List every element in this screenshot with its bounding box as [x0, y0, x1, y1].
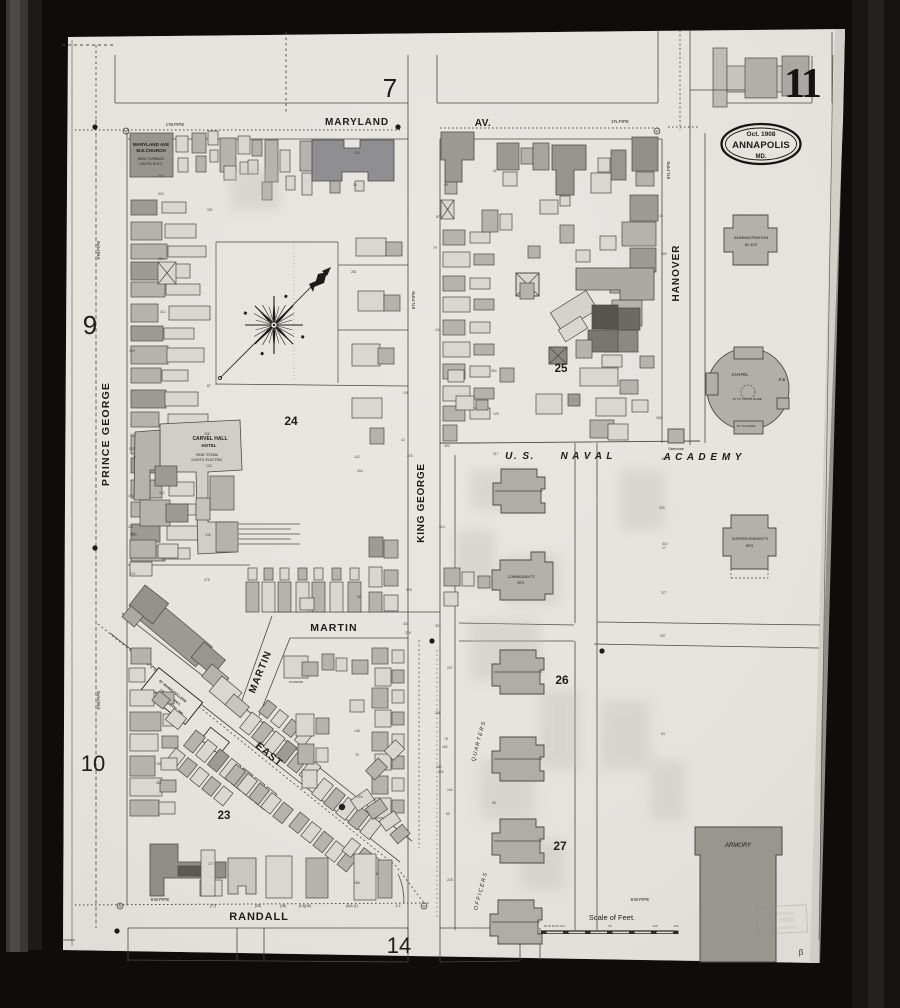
svg-text:FOUNTAIN: FOUNTAIN	[289, 680, 303, 684]
svg-text:27: 27	[553, 839, 567, 853]
svg-text:177: 177	[208, 862, 214, 866]
svg-text:87: 87	[436, 215, 440, 219]
svg-text:7: 7	[383, 73, 397, 103]
svg-text:314: 314	[439, 525, 445, 529]
svg-text:228: 228	[447, 878, 453, 882]
svg-text:76: 76	[355, 753, 359, 757]
svg-text:96: 96	[357, 595, 361, 599]
svg-text:(14)(16): (14)(16)	[299, 904, 312, 908]
svg-text:331: 331	[128, 525, 134, 529]
svg-text:171: 171	[130, 572, 136, 576]
svg-text:311: 311	[156, 781, 162, 785]
svg-text:337: 337	[660, 634, 666, 638]
svg-text:(18): (18)	[280, 904, 286, 908]
svg-text:50: 50	[608, 924, 612, 928]
svg-text:14: 14	[387, 933, 411, 958]
svg-text:76' TO TOP OF DOME: 76' TO TOP OF DOME	[732, 397, 761, 401]
svg-text:Gatehouse: Gatehouse	[668, 447, 684, 451]
svg-text:SUPERINTENDENT'S: SUPERINTENDENT'S	[732, 537, 769, 541]
svg-text:164: 164	[447, 788, 453, 792]
svg-text:354: 354	[491, 369, 497, 373]
svg-text:324: 324	[158, 192, 164, 196]
svg-text:353: 353	[130, 433, 136, 437]
svg-text:159: 159	[129, 349, 135, 353]
svg-text:182: 182	[442, 745, 448, 749]
svg-text:26: 26	[555, 673, 569, 687]
svg-text:207: 207	[447, 666, 453, 670]
svg-text:59: 59	[446, 812, 450, 816]
svg-text:148: 148	[354, 729, 360, 733]
svg-text:150: 150	[673, 924, 678, 928]
svg-text:1′N.PIPE: 1′N.PIPE	[611, 119, 629, 124]
svg-text:PRINCE GEORGE: PRINCE GEORGE	[100, 382, 112, 486]
svg-text:4 2: 4 2	[396, 904, 401, 908]
svg-text:MARYLAND AVE: MARYLAND AVE	[133, 142, 169, 147]
svg-text:275: 275	[204, 578, 210, 582]
svg-text:RANDALL: RANDALL	[229, 911, 288, 923]
svg-text:MARYLAND: MARYLAND	[325, 117, 389, 128]
svg-text:KING GEORGE: KING GEORGE	[416, 463, 427, 542]
svg-text:10: 10	[81, 751, 105, 776]
svg-text:11: 11	[784, 61, 820, 107]
svg-text:(8)A (1): (8)A (1)	[346, 904, 358, 908]
svg-text:25: 25	[132, 455, 136, 459]
svg-text:50 40 30 20 10 0: 50 40 30 20 10 0	[544, 924, 565, 928]
svg-text:LIGHTS: ELEC.: LIGHTS: ELEC.	[139, 162, 163, 166]
svg-text:MARTIN: MARTIN	[310, 622, 357, 634]
svg-text:6′W.PIPE: 6′W.PIPE	[151, 897, 170, 902]
svg-text:245: 245	[205, 533, 211, 537]
svg-text:6′W.PIPE: 6′W.PIPE	[631, 897, 650, 902]
svg-text:(77): (77)	[210, 904, 216, 908]
svg-text:6′W.PIPE: 6′W.PIPE	[96, 241, 101, 260]
svg-text:BL'D'G: BL'D'G	[745, 242, 757, 247]
svg-text:LIGHTS: ELECTRIC: LIGHTS: ELECTRIC	[192, 458, 223, 462]
svg-text:42: 42	[401, 438, 405, 442]
svg-text:129: 129	[493, 412, 499, 416]
svg-text:6′W.PIPE: 6′W.PIPE	[96, 691, 101, 710]
svg-text:ANNAPOLIS: ANNAPOLIS	[732, 140, 790, 151]
svg-text:6′N.PIPE: 6′N.PIPE	[666, 161, 671, 179]
svg-text:377: 377	[661, 591, 667, 595]
svg-text:HEAT: STEAM: HEAT: STEAM	[196, 453, 218, 457]
svg-text:286: 286	[354, 881, 360, 885]
svg-text:1′W.PIPE: 1′W.PIPE	[166, 122, 185, 127]
svg-text:311: 311	[130, 532, 136, 536]
svg-text:Scale of Feet.: Scale of Feet.	[589, 913, 635, 922]
svg-text:ARMORY: ARMORY	[724, 843, 752, 849]
svg-text:338: 338	[204, 432, 210, 436]
svg-text:104: 104	[435, 328, 441, 332]
svg-text:HOTEL: HOTEL	[202, 443, 217, 448]
svg-text:(20): (20)	[255, 904, 261, 908]
svg-text:25: 25	[555, 363, 568, 375]
svg-text:180: 180	[156, 762, 162, 766]
svg-text:16: 16	[659, 214, 663, 218]
svg-text:304: 304	[357, 469, 363, 473]
svg-text:RES.: RES.	[746, 544, 754, 548]
svg-text:HEAT: FURNACE: HEAT: FURNACE	[138, 157, 165, 161]
svg-text:331: 331	[207, 208, 213, 212]
svg-text:MD.: MD.	[756, 154, 767, 160]
svg-text:AV.: AV.	[475, 118, 492, 129]
svg-text:87: 87	[207, 384, 211, 388]
svg-text:281: 281	[351, 270, 357, 274]
svg-text:269: 269	[661, 252, 667, 256]
svg-text:13: 13	[353, 183, 357, 187]
svg-text:100: 100	[652, 924, 657, 928]
svg-text:300: 300	[444, 444, 450, 448]
svg-text:F-5: F-5	[779, 378, 784, 382]
svg-text:152: 152	[438, 770, 444, 774]
svg-text:268: 268	[435, 711, 441, 715]
svg-text:342: 342	[159, 491, 165, 495]
svg-text:N A V A L: N A V A L	[560, 451, 613, 462]
svg-text:123: 123	[206, 464, 212, 468]
svg-text:— 1955: — 1955	[770, 916, 793, 924]
svg-text:A C A D E M Y: A C A D E M Y	[663, 452, 743, 463]
svg-text:6′N.PIPE: 6′N.PIPE	[411, 291, 416, 309]
svg-text:142: 142	[354, 455, 360, 459]
svg-text:194: 194	[128, 494, 134, 498]
svg-text:63: 63	[661, 732, 665, 736]
svg-text:24: 24	[284, 414, 298, 428]
svg-text:314: 314	[662, 542, 668, 546]
svg-text:23: 23	[218, 810, 231, 822]
svg-text:40' TO EAVES: 40' TO EAVES	[737, 424, 756, 428]
svg-text:9: 9	[83, 310, 97, 340]
svg-text:ADMINISTRATION: ADMINISTRATION	[733, 235, 768, 240]
svg-text:RES.: RES.	[517, 581, 525, 585]
svg-text:105: 105	[403, 391, 409, 395]
svg-text:17: 17	[662, 546, 666, 550]
svg-text:M.E.CHURCH: M.E.CHURCH	[136, 148, 166, 153]
svg-text:89: 89	[444, 183, 448, 187]
svg-text:378: 378	[406, 588, 412, 592]
svg-text:78: 78	[444, 737, 448, 741]
svg-text:312: 312	[160, 310, 166, 314]
svg-text:360: 360	[158, 174, 164, 178]
svg-text:330: 330	[436, 765, 442, 769]
svg-text:222: 222	[129, 447, 135, 451]
svg-text:378: 378	[405, 631, 411, 635]
svg-text:334: 334	[403, 622, 409, 626]
svg-text:203: 203	[407, 454, 413, 458]
svg-text:CARVEL HALL: CARVEL HALL	[192, 436, 227, 442]
svg-text:363: 363	[656, 416, 662, 420]
svg-text:309: 309	[659, 506, 665, 510]
svg-text:317: 317	[493, 452, 499, 456]
svg-text:303: 303	[357, 795, 363, 799]
svg-text:79: 79	[433, 246, 437, 250]
svg-text:CHAPEL: CHAPEL	[732, 372, 749, 377]
svg-text:284: 284	[158, 257, 164, 261]
svg-text:328: 328	[354, 151, 360, 155]
svg-text:41: 41	[493, 169, 497, 173]
svg-text:357: 357	[435, 624, 441, 628]
svg-text:HANOVER: HANOVER	[671, 244, 682, 301]
svg-text:COMMANDANT'S: COMMANDANT'S	[508, 575, 536, 579]
svg-text:55: 55	[492, 801, 496, 805]
svg-text:U. S.: U. S.	[505, 451, 535, 462]
svg-text:Oct. 1908: Oct. 1908	[747, 131, 776, 138]
svg-text:β: β	[799, 948, 804, 957]
